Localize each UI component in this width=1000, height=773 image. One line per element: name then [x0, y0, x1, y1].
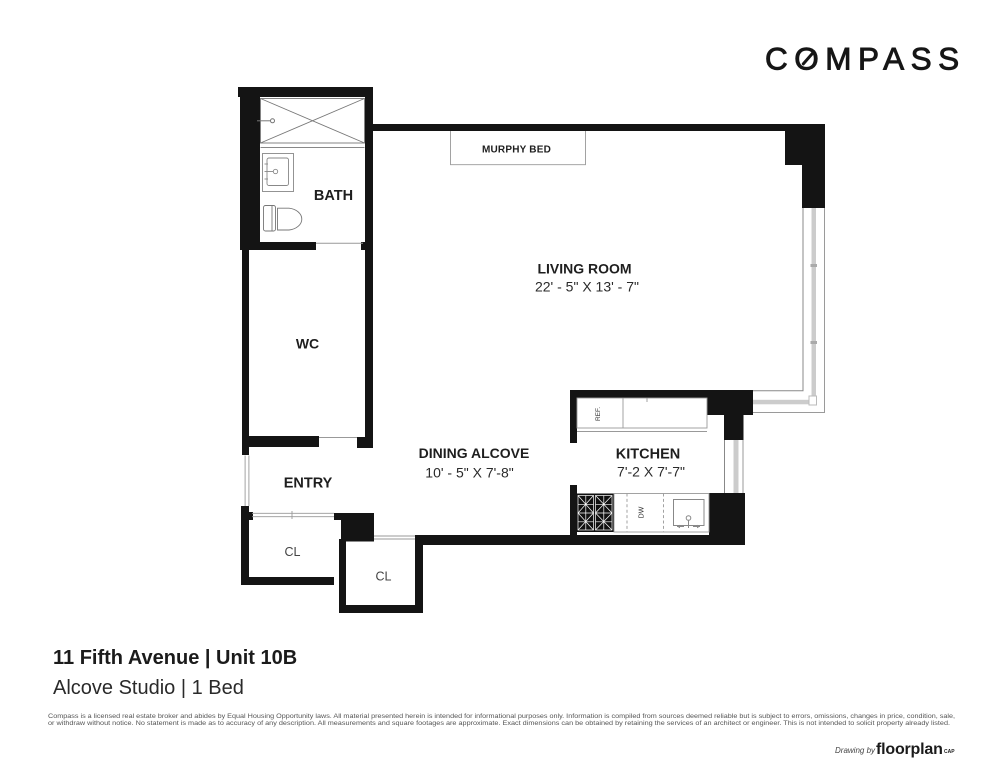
svg-text:ENTRY: ENTRY: [284, 476, 333, 492]
svg-text:22' - 5" X 13' - 7": 22' - 5" X 13' - 7": [535, 279, 639, 295]
svg-text:DINING ALCOVE: DINING ALCOVE: [419, 445, 530, 461]
svg-text:DW: DW: [639, 506, 646, 518]
svg-text:Compass is a licensed real est: Compass is a licensed real estate broker…: [48, 713, 955, 720]
svg-text:MURPHY BED: MURPHY BED: [482, 145, 551, 156]
svg-text:KITCHEN: KITCHEN: [616, 447, 680, 463]
svg-text:or withdraw without notice. No: or withdraw without notice. No statement…: [48, 720, 950, 727]
svg-text:WC: WC: [296, 336, 319, 352]
svg-text:LIVING ROOM: LIVING ROOM: [537, 261, 631, 277]
svg-text:BATH: BATH: [314, 188, 353, 204]
svg-text:7'-2 X 7'-7": 7'-2 X 7'-7": [617, 464, 685, 480]
svg-text:CL: CL: [285, 545, 301, 559]
svg-text:floorplan: floorplan: [876, 741, 943, 758]
svg-text:CL: CL: [376, 570, 392, 584]
svg-text:CAP: CAP: [944, 749, 955, 755]
svg-text:Drawing by: Drawing by: [835, 746, 876, 755]
svg-text:REF.: REF.: [595, 407, 602, 421]
svg-text:10' - 5" X 7'-8": 10' - 5" X 7'-8": [425, 465, 513, 481]
svg-text:11 Fifth Avenue | Unit 10B: 11 Fifth Avenue | Unit 10B: [53, 647, 297, 669]
svg-text:COMPASS: COMPASS: [765, 41, 966, 77]
svg-text:Alcove Studio | 1 Bed: Alcove Studio | 1 Bed: [53, 677, 244, 699]
